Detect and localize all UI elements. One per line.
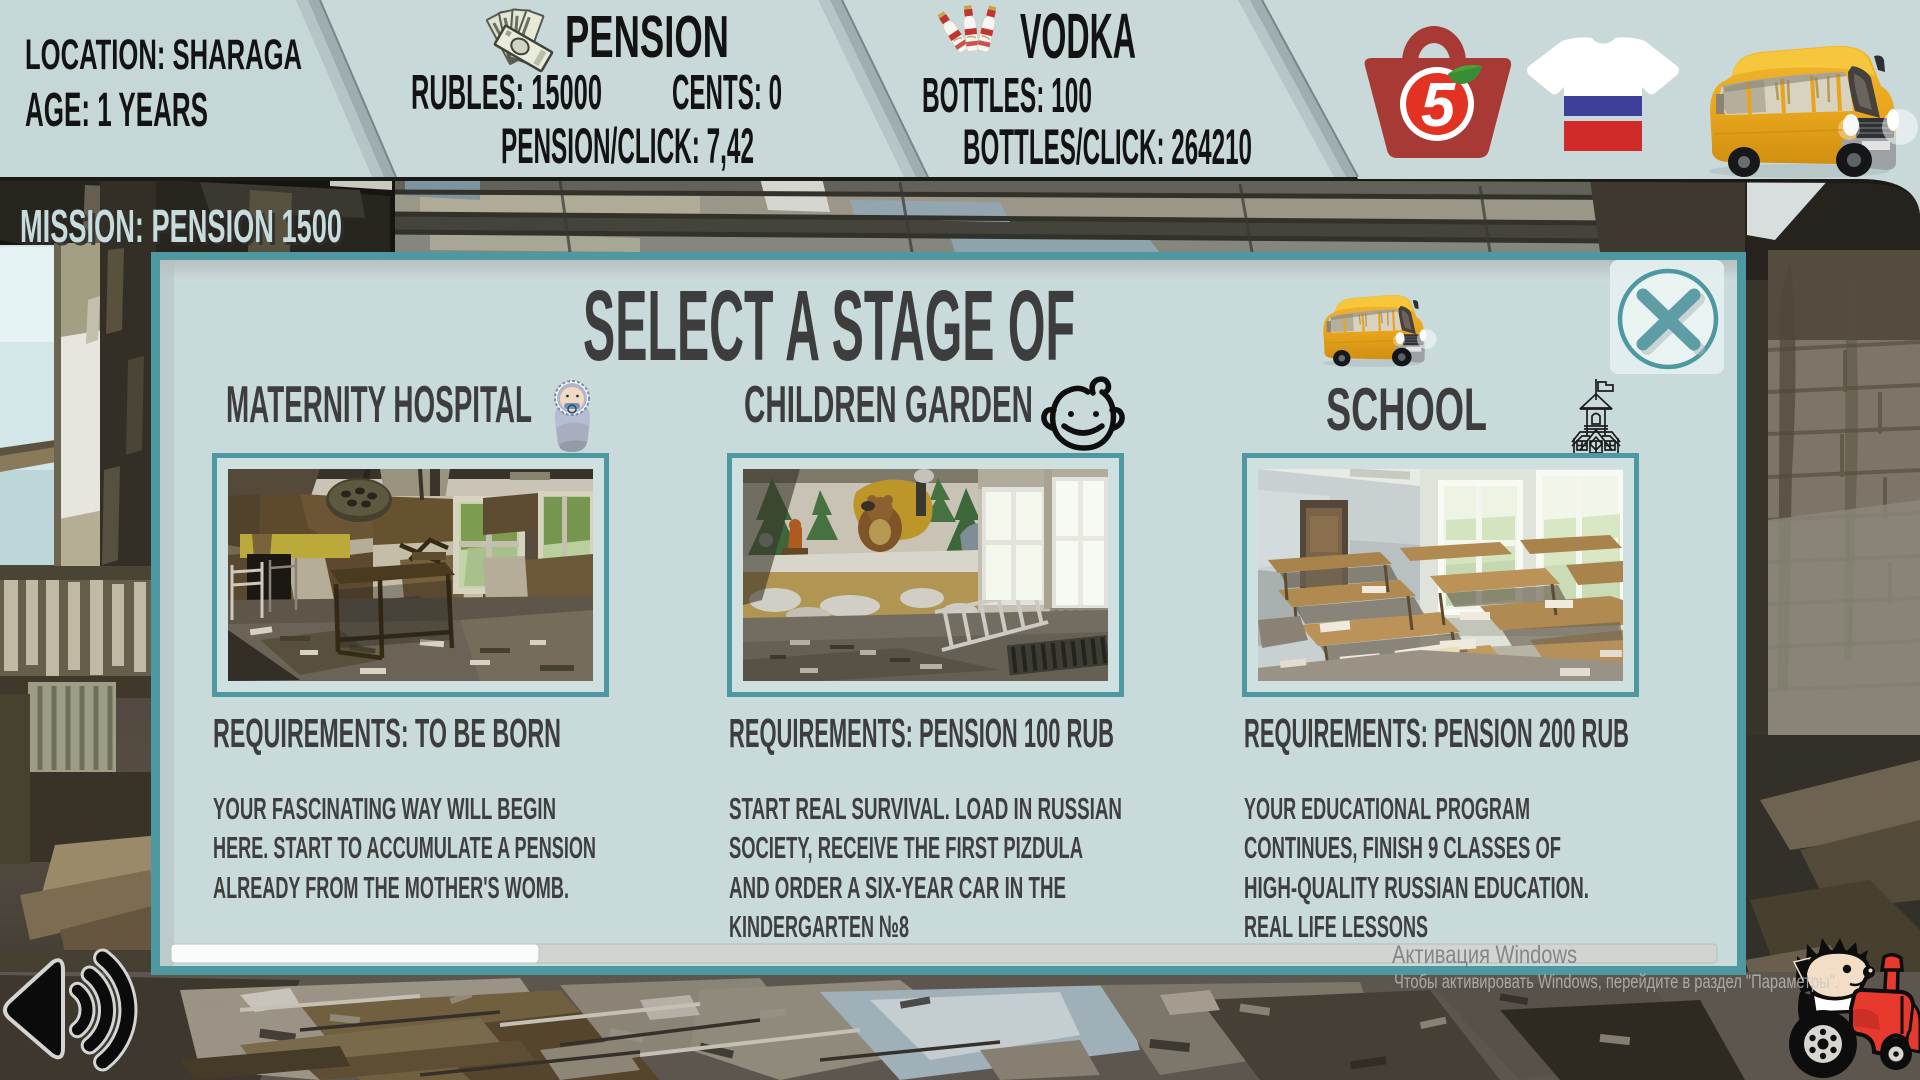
svg-text:CONTINUES, FINISH 9 CLASSES OF: CONTINUES, FINISH 9 CLASSES OF — [1244, 830, 1561, 865]
svg-text:CHILDREN GARDEN: CHILDREN GARDEN — [744, 376, 1033, 434]
svg-text:MISSION: PENSION 1500: MISSION: PENSION 1500 — [20, 200, 342, 252]
svg-text:PENSION/CLICK: 7,42: PENSION/CLICK: 7,42 — [501, 118, 754, 174]
svg-text:PENSION: PENSION — [565, 4, 729, 70]
svg-text:MATERNITY HOSPITAL: MATERNITY HOSPITAL — [226, 376, 532, 434]
svg-text:VODKA: VODKA — [1020, 0, 1136, 72]
svg-text:BOTTLES/CLICK: 264210: BOTTLES/CLICK: 264210 — [963, 119, 1252, 175]
svg-text:BOTTLES: 100: BOTTLES: 100 — [922, 69, 1092, 123]
svg-text:SCHOOL: SCHOOL — [1326, 376, 1487, 443]
svg-text:Чтобы активировать Windows, пе: Чтобы активировать Windows, перейдите в … — [1394, 972, 1839, 993]
svg-text:KINDERGARTEN №8: KINDERGARTEN №8 — [729, 909, 909, 944]
svg-text:HIGH-QUALITY RUSSIAN EDUCATION: HIGH-QUALITY RUSSIAN EDUCATION. — [1244, 870, 1589, 905]
svg-text:LOCATION: SHARAGA: LOCATION: SHARAGA — [25, 31, 302, 79]
svg-text:HERE. START TO ACCUMULATE A PE: HERE. START TO ACCUMULATE A PENSION — [213, 830, 596, 865]
svg-text:AND ORDER A SIX-YEAR CAR IN TH: AND ORDER A SIX-YEAR CAR IN THE — [729, 870, 1066, 905]
svg-text:YOUR FASCINATING WAY WILL BEGI: YOUR FASCINATING WAY WILL BEGIN — [213, 791, 556, 826]
svg-text:REQUIREMENTS: TO BE BORN: REQUIREMENTS: TO BE BORN — [213, 710, 561, 756]
svg-text:REQUIREMENTS: PENSION 100 RUB: REQUIREMENTS: PENSION 100 RUB — [729, 710, 1114, 756]
svg-text:ALREADY FROM THE MOTHER'S WOMB: ALREADY FROM THE MOTHER'S WOMB. — [213, 870, 569, 905]
svg-text:RUBLES: 15000: RUBLES: 15000 — [411, 66, 602, 120]
svg-text:YOUR EDUCATIONAL PROGRAM: YOUR EDUCATIONAL PROGRAM — [1244, 791, 1530, 826]
svg-text:CENTS: 0: CENTS: 0 — [672, 66, 782, 120]
svg-text:AGE: 1 YEARS: AGE: 1 YEARS — [25, 84, 208, 137]
svg-text:SOCIETY, RECEIVE THE FIRST PIZ: SOCIETY, RECEIVE THE FIRST PIZDULA — [729, 830, 1083, 865]
svg-text:REQUIREMENTS: PENSION 200 RUB: REQUIREMENTS: PENSION 200 RUB — [1244, 710, 1629, 756]
svg-text:START REAL SURVIVAL. LOAD IN R: START REAL SURVIVAL. LOAD IN RUSSIAN — [729, 791, 1122, 826]
svg-text:Активация Windows: Активация Windows — [1392, 941, 1577, 969]
svg-text:REAL LIFE LESSONS: REAL LIFE LESSONS — [1244, 909, 1428, 944]
svg-text:SELECT A STAGE OF: SELECT A STAGE OF — [583, 270, 1075, 382]
svg-text:5: 5 — [1421, 71, 1456, 140]
